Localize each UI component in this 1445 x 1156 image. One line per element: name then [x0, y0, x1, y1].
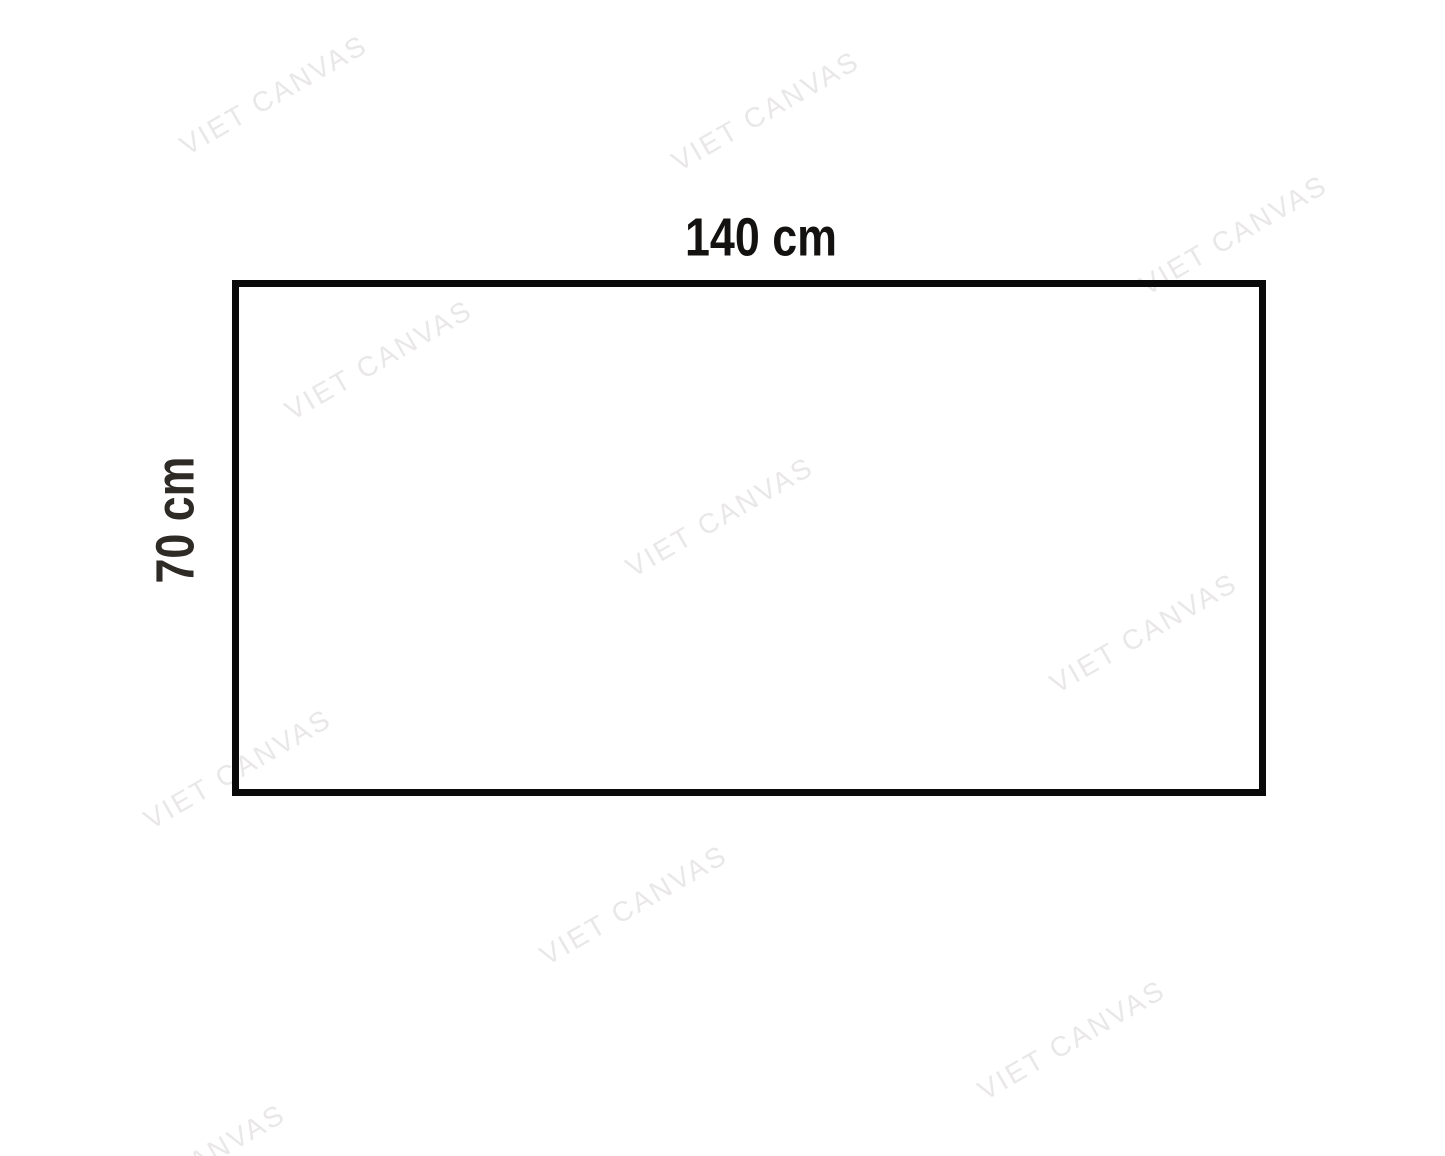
svg-text:140 cm: 140 cm: [685, 208, 837, 268]
svg-text:70 cm: 70 cm: [146, 457, 206, 584]
